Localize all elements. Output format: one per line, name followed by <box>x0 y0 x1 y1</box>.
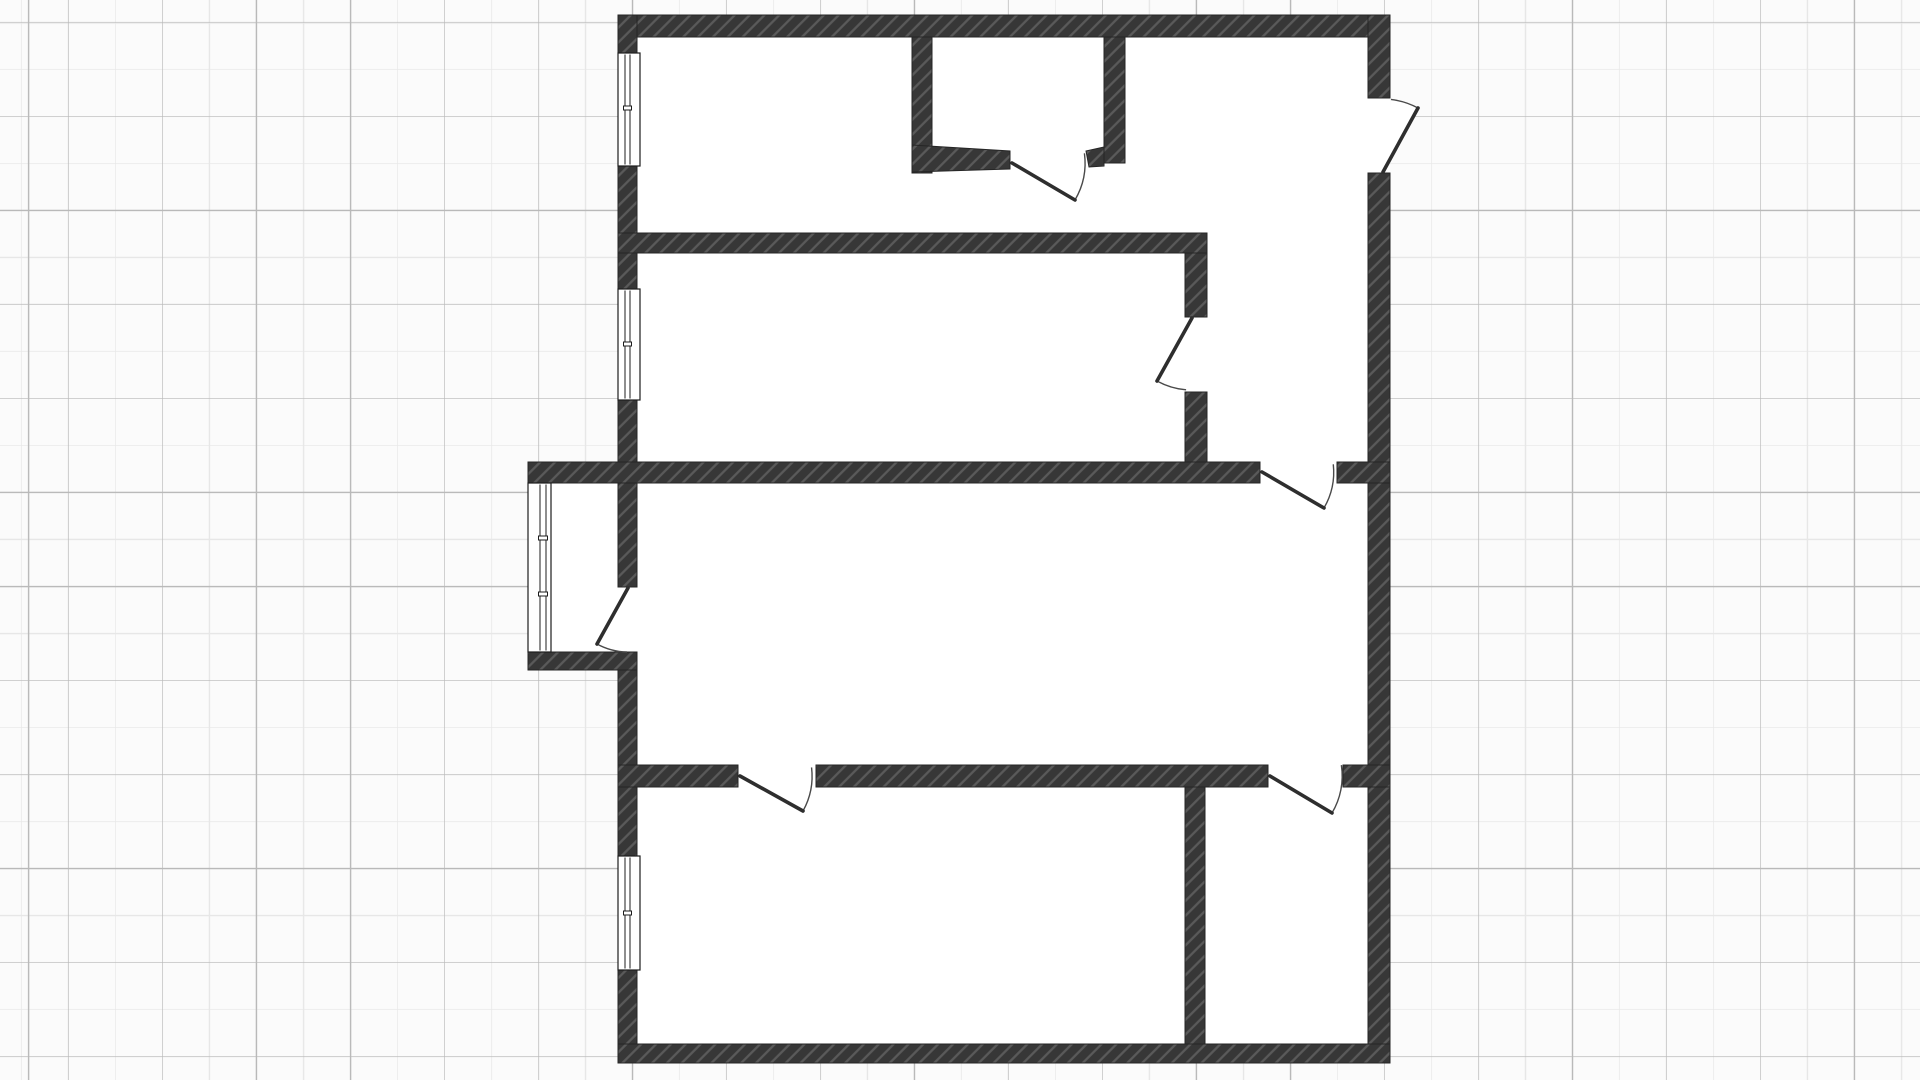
window-bottom-left-sash-tick <box>624 911 632 915</box>
wall-hall-lower[interactable] <box>1185 392 1207 462</box>
wall-outer-left-d[interactable] <box>618 670 637 856</box>
wall-closet-right[interactable] <box>1104 37 1125 163</box>
wall-outer-left-b[interactable] <box>618 166 637 289</box>
wall-living-bottom-left[interactable] <box>618 765 738 787</box>
window-top-left[interactable] <box>618 53 640 166</box>
wall-outer-left-c[interactable] <box>618 400 637 587</box>
window-balcony-sash-tick <box>539 536 548 540</box>
wall-outer-left-e[interactable] <box>618 970 637 1044</box>
window-mid-left[interactable] <box>618 289 640 400</box>
window-balcony-sash-tick <box>539 592 548 596</box>
wall-bottom-divider[interactable] <box>1185 787 1205 1044</box>
wall-living-top-right[interactable] <box>1337 462 1390 483</box>
floor-plan[interactable] <box>0 0 1920 1080</box>
grid-canvas[interactable] <box>0 0 1920 1080</box>
window-balcony[interactable] <box>528 483 551 652</box>
window-top-left-sash-tick <box>624 106 632 110</box>
wall-hall-upper[interactable] <box>1185 253 1207 317</box>
wall-balcony-bottom[interactable] <box>528 652 637 670</box>
main-floor <box>618 15 1390 1063</box>
wall-outer-left-a[interactable] <box>618 15 637 53</box>
window-mid-left-sash-tick <box>624 342 632 346</box>
wall-outer-right-main[interactable] <box>1368 173 1390 1063</box>
wall-living-bottom-mid[interactable] <box>816 765 1268 787</box>
wall-closet-bottom-stub[interactable] <box>1086 147 1104 167</box>
wall-outer-right-upper[interactable] <box>1368 15 1390 98</box>
wall-outer-bottom[interactable] <box>618 1044 1390 1063</box>
window-bottom-left[interactable] <box>618 856 640 970</box>
wall-outer-top[interactable] <box>618 15 1390 37</box>
wall-divider-upper[interactable] <box>618 233 1207 253</box>
wall-living-bottom-right[interactable] <box>1343 765 1390 787</box>
wall-living-top-main[interactable] <box>528 462 1260 483</box>
